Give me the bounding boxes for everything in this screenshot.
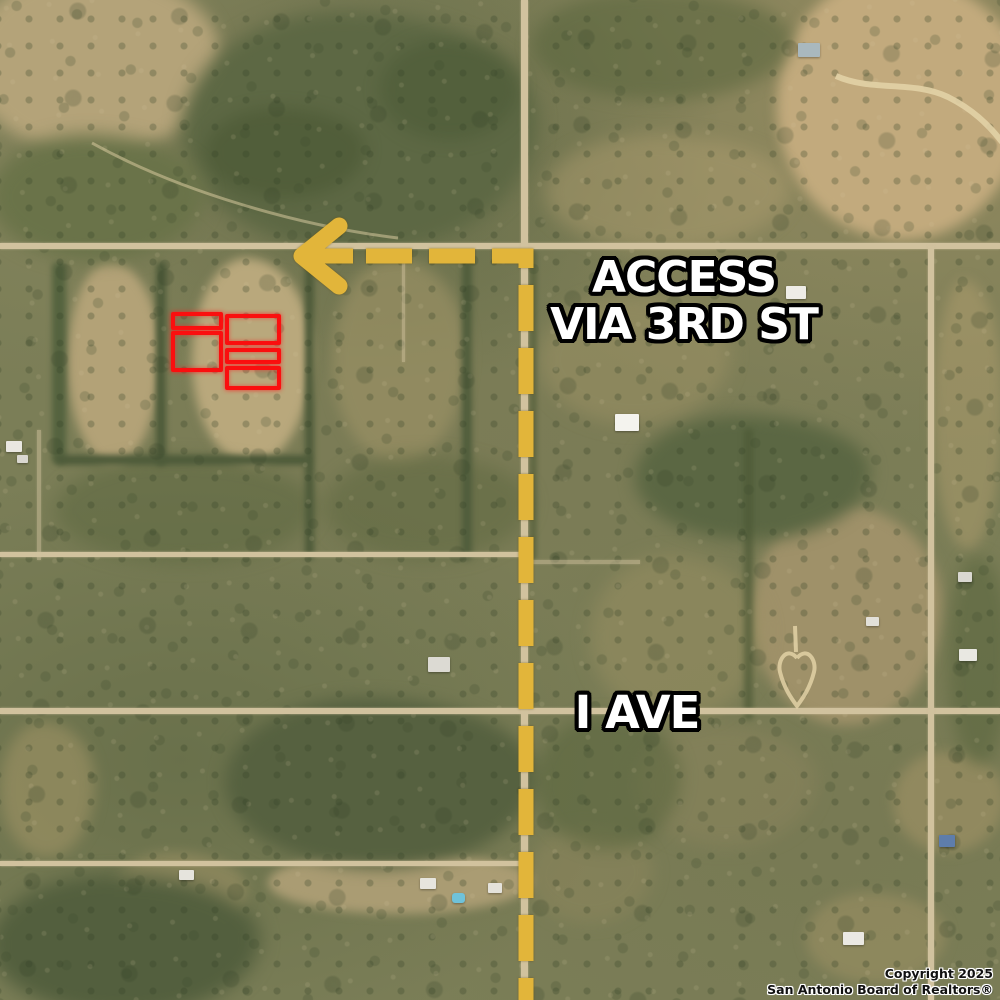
dirt-track [530,560,640,564]
dirt-track [37,430,41,560]
building [6,441,22,452]
road-3rd-st [0,243,1000,249]
hedgerow [744,428,753,720]
hedgerow [52,262,66,464]
access-note-line2: VIA 3RD ST [488,301,880,348]
aerial-map-image: ACCESS VIA 3RD ST I AVE Copyright 2025 S… [0,0,1000,1000]
building [420,878,436,889]
building [958,572,972,582]
road-main-vertical [521,0,528,1000]
hedgerow [55,455,310,465]
road-i-ave [0,708,1000,714]
road-bottom-left [0,861,532,866]
road-right-vertical [928,246,934,1000]
copyright-line2: San Antonio Board of Realtors® [767,982,993,998]
building [959,649,977,661]
building [798,43,820,57]
road-mid-left [0,552,532,557]
dirt-field [933,280,1000,550]
building [843,932,864,945]
street-label-i-ave: I AVE [542,690,732,736]
swimming-pool [452,893,465,903]
access-note-line1: ACCESS [488,254,880,301]
hedgerow [156,262,166,466]
hedgerow [305,254,314,560]
parcel-outline [171,312,223,330]
building [488,883,502,893]
building [179,870,194,880]
parcel-outline [171,331,223,372]
building [939,835,955,847]
parcel-outline [225,366,281,390]
hedgerow [462,254,472,560]
building [615,414,639,431]
building [866,617,879,626]
copyright-line1: Copyright 2025 [767,966,993,982]
dirt-track [402,250,405,362]
copyright-attribution: Copyright 2025 San Antonio Board of Real… [767,966,993,998]
parcel-outline [225,348,281,364]
access-note-label: ACCESS VIA 3RD ST [488,254,880,348]
building [428,657,450,672]
building [17,455,28,463]
parcel-outline [225,314,281,345]
